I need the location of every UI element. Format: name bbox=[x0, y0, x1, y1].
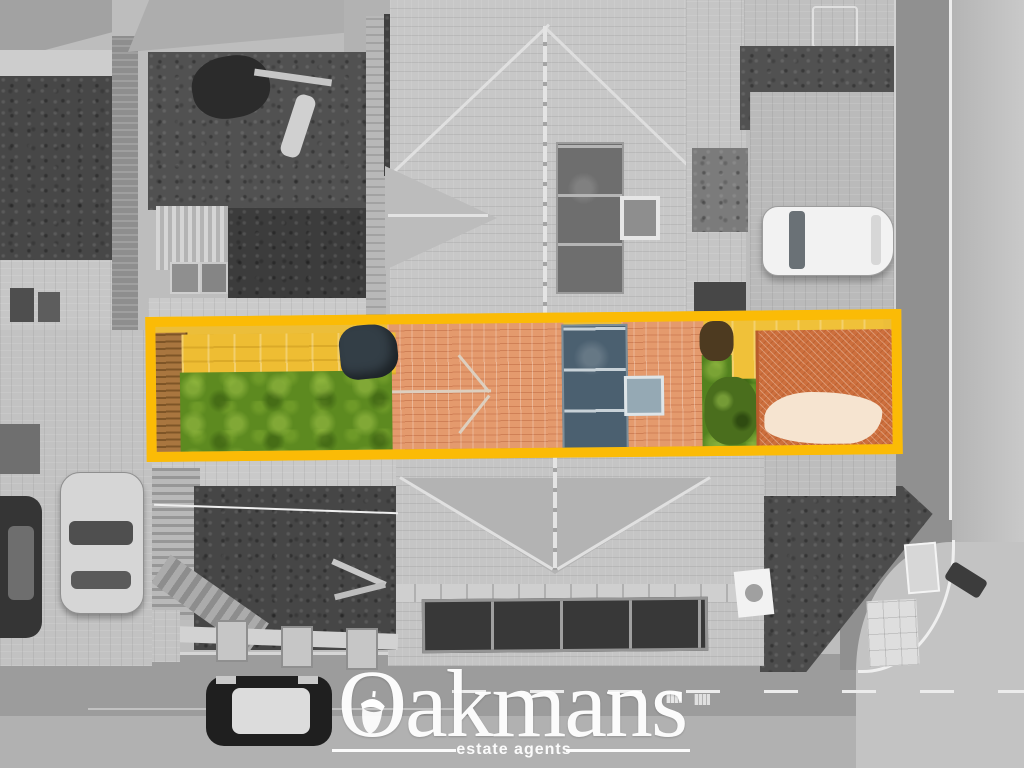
neighbour-garden-left bbox=[0, 76, 113, 264]
driveway-worn-patch bbox=[764, 391, 883, 444]
party-wall-ridge bbox=[553, 452, 557, 570]
parked-car-white bbox=[762, 206, 894, 276]
utility-marker bbox=[904, 542, 940, 595]
driveway-grayscale-part bbox=[754, 452, 896, 496]
dormer-gable bbox=[385, 166, 497, 270]
chimney bbox=[734, 568, 775, 618]
tagline-rule-left bbox=[332, 749, 456, 752]
boundary-fence bbox=[366, 16, 386, 324]
tagline-rule-right bbox=[566, 749, 690, 752]
wall-pillar bbox=[281, 626, 313, 668]
dropped-kerb-tiles bbox=[866, 599, 919, 668]
wall-pillar bbox=[216, 620, 248, 662]
wheelie-bins-left bbox=[8, 286, 70, 330]
skylight-colour bbox=[624, 376, 664, 416]
rotary-dryer bbox=[326, 562, 392, 610]
garden-slide bbox=[254, 70, 350, 144]
parked-car-dark bbox=[0, 496, 42, 638]
roof-ridge-vertical bbox=[543, 26, 547, 324]
solar-array-front bbox=[422, 597, 708, 653]
garden-shed bbox=[156, 206, 228, 270]
main-house-upper-roof bbox=[390, 0, 708, 324]
pavement-right bbox=[952, 0, 1024, 562]
dormer-ridge bbox=[388, 214, 488, 217]
neighbour-driveway bbox=[750, 92, 898, 314]
skylight-upper bbox=[620, 196, 660, 240]
main-house-lower-roof bbox=[388, 452, 764, 666]
aerial-photo: Oakmans estate agents bbox=[0, 0, 1024, 768]
manhole-cover-outline bbox=[812, 6, 858, 48]
parked-car-silver bbox=[60, 472, 144, 614]
rear-garden-lawn bbox=[180, 370, 393, 452]
timber-fence-left bbox=[112, 36, 138, 334]
door-mat bbox=[0, 424, 40, 474]
acorn-icon bbox=[353, 687, 392, 738]
dark-plant bbox=[699, 321, 733, 361]
garden-bush bbox=[704, 377, 759, 446]
property-boundary-highlight bbox=[145, 309, 902, 462]
roof-ridge-left bbox=[387, 24, 550, 179]
terracotta-roof-left bbox=[387, 323, 564, 451]
solar-panels-upper bbox=[556, 142, 624, 294]
solar-panels-colour bbox=[561, 324, 628, 453]
road-vertical bbox=[894, 0, 956, 566]
wheelie-bins bbox=[170, 262, 230, 294]
gravel-bed bbox=[692, 148, 748, 232]
